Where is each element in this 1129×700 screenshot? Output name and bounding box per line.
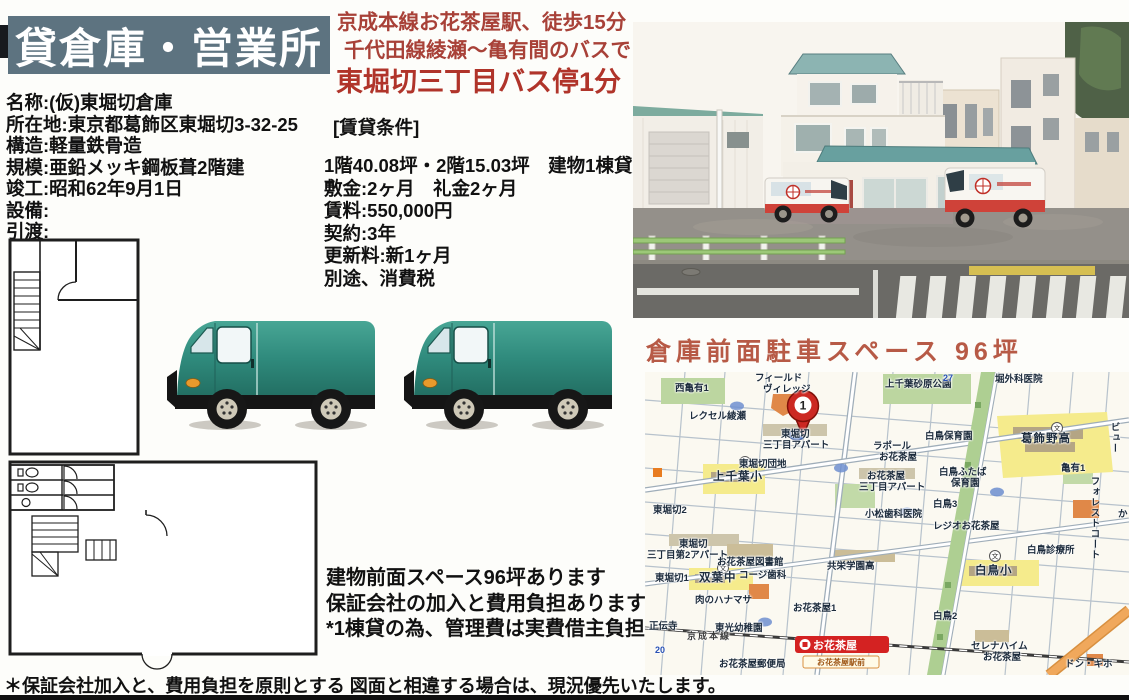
map-label: 肉のハナマサ	[695, 596, 752, 606]
map-label: 葛飾野高	[1021, 434, 1071, 446]
map-label: セレナハイム	[971, 642, 1028, 652]
lease-heading: [賃貸条件]	[333, 114, 419, 140]
map-label: 白鳥ふたば	[939, 468, 987, 478]
property-structure: 構造:軽量鉄骨造	[6, 135, 326, 157]
property-equipment: 設備:	[6, 200, 326, 222]
map-label: お花茶屋	[867, 472, 905, 482]
property-photo	[633, 22, 1129, 318]
map-label: お花茶屋1	[793, 604, 836, 614]
lease-area: 1階40.08坪・2階15.03坪 建物1棟貸	[324, 155, 632, 178]
map-label: お花茶屋	[879, 453, 917, 463]
map-label: 小松歯科医院	[865, 510, 922, 520]
map-label: 堀外科医院	[995, 375, 1043, 385]
van-right	[404, 321, 612, 430]
map-label: 双葉中	[699, 573, 737, 585]
lease-conditions: 1階40.08坪・2階15.03坪 建物1棟貸 敷金:2ヶ月 礼金2ヶ月 賃料:…	[324, 155, 632, 291]
flyer-page: 貸倉庫・営業所 名称:(仮)東堀切倉庫 所在地:東京都葛飾区東堀切3-32-25…	[0, 0, 1129, 700]
floorplan-1f	[6, 458, 320, 674]
map-label: 西亀有1	[675, 384, 709, 394]
map-label: ラポール	[873, 442, 911, 452]
bottom-border	[0, 695, 1129, 700]
map-label: か	[1118, 510, 1128, 520]
map-label: お花茶屋	[983, 653, 1021, 663]
lease-rent: 賃料:550,000円	[324, 200, 632, 223]
property-completion: 竣工:昭和62年9月1日	[6, 178, 326, 200]
map-label: お花茶屋図書館	[717, 558, 784, 568]
lease-term: 契約:3年	[324, 223, 632, 246]
map-label: 白鳥小	[975, 566, 1013, 578]
floorplan-2f	[6, 236, 142, 458]
left-warehouse	[633, 106, 763, 212]
map-label: 白鳥診療所	[1027, 546, 1075, 556]
map-label: 上千葉砂原公園	[885, 380, 952, 390]
map-label: 東堀切1	[655, 574, 689, 584]
map-label: 三丁目アパート	[763, 441, 829, 451]
map-label: レクセル綾瀬	[689, 412, 746, 422]
banner-left-notch	[0, 25, 8, 58]
map-labels: 西亀有1フィールドヴィレッジ上千葉砂原公園堀外科医院レクセル綾瀬東堀切三丁目アパ…	[645, 372, 1129, 675]
lease-tax: 別途、消費税	[324, 268, 632, 291]
parking-title: 倉庫前面駐車スペース 96坪	[646, 332, 1129, 368]
map-label: 20	[655, 646, 665, 655]
map-label: ヴィレッジ	[763, 385, 811, 395]
van-left	[167, 321, 375, 430]
map-label: 白鳥3	[933, 500, 957, 510]
map-label: 白鳥保育園	[925, 432, 973, 442]
map-label: 共栄学園高	[827, 562, 875, 572]
access-line-3: 東堀切三丁目バス停1分	[336, 60, 621, 99]
map-label: 京成本線	[687, 632, 731, 641]
property-name: 名称:(仮)東堀切倉庫	[6, 92, 326, 114]
property-scale: 規模:亜鉛メッキ鋼板葺2階建	[6, 157, 326, 179]
map-label: レジオお花茶屋	[933, 522, 1000, 532]
map-label: ビュー	[1109, 422, 1119, 454]
map-label: 三丁目アパート	[859, 483, 925, 493]
map-label: フィールド	[755, 374, 802, 384]
lease-renewal: 更新料:新1ヶ月	[324, 245, 632, 268]
map-label: コージ歯科	[739, 571, 786, 581]
map-label: 上千葉小	[713, 472, 763, 484]
access-line-1: 京成本線お花茶屋駅、徒歩15分	[337, 5, 626, 35]
map-label: フォレストコート	[1089, 476, 1099, 560]
tactile-paving	[969, 266, 1095, 275]
map-label: 白鳥2	[933, 612, 957, 622]
map-label: お花茶屋郵便局	[719, 660, 786, 670]
map-label: 三丁目第2アパート	[647, 551, 728, 561]
map-label: 正伝寺	[649, 622, 678, 632]
map-label: 東堀切2	[653, 506, 687, 516]
banner: 貸倉庫・営業所	[8, 16, 330, 74]
map-label: 東堀切	[679, 540, 708, 550]
note-guarantor: 保証会社の加入と費用負担あります	[326, 592, 646, 618]
van-illustrations	[160, 303, 630, 438]
note-management: *1棟貸の為、管理費は実費借主負担	[326, 617, 646, 643]
property-details: 名称:(仮)東堀切倉庫 所在地:東京都葛飾区東堀切3-32-25 構造:軽量鉄骨…	[6, 92, 326, 243]
property-address: 所在地:東京都葛飾区東堀切3-32-25	[6, 114, 326, 136]
map-label: 東堀切	[781, 430, 810, 440]
lease-deposit: 敷金:2ヶ月 礼金2ヶ月	[324, 178, 632, 201]
map-label: ドン・キホ	[1065, 660, 1113, 670]
map: 文 文 文 文 お花茶屋 お花茶屋駅前	[645, 372, 1129, 675]
map-label: 27	[943, 374, 953, 383]
access-line-2: 千代田線綾瀬～亀有間のバスで	[344, 33, 631, 63]
notes: 建物前面スペース96坪あります 保証会社の加入と費用負担あります *1棟貸の為、…	[326, 566, 646, 643]
note-front-space: 建物前面スペース96坪あります	[326, 566, 646, 592]
map-label: 東堀切団地	[739, 460, 787, 470]
map-label: 保育園	[951, 479, 980, 489]
banner-title: 貸倉庫・営業所	[15, 15, 323, 76]
map-label: 亀有1	[1061, 464, 1085, 474]
